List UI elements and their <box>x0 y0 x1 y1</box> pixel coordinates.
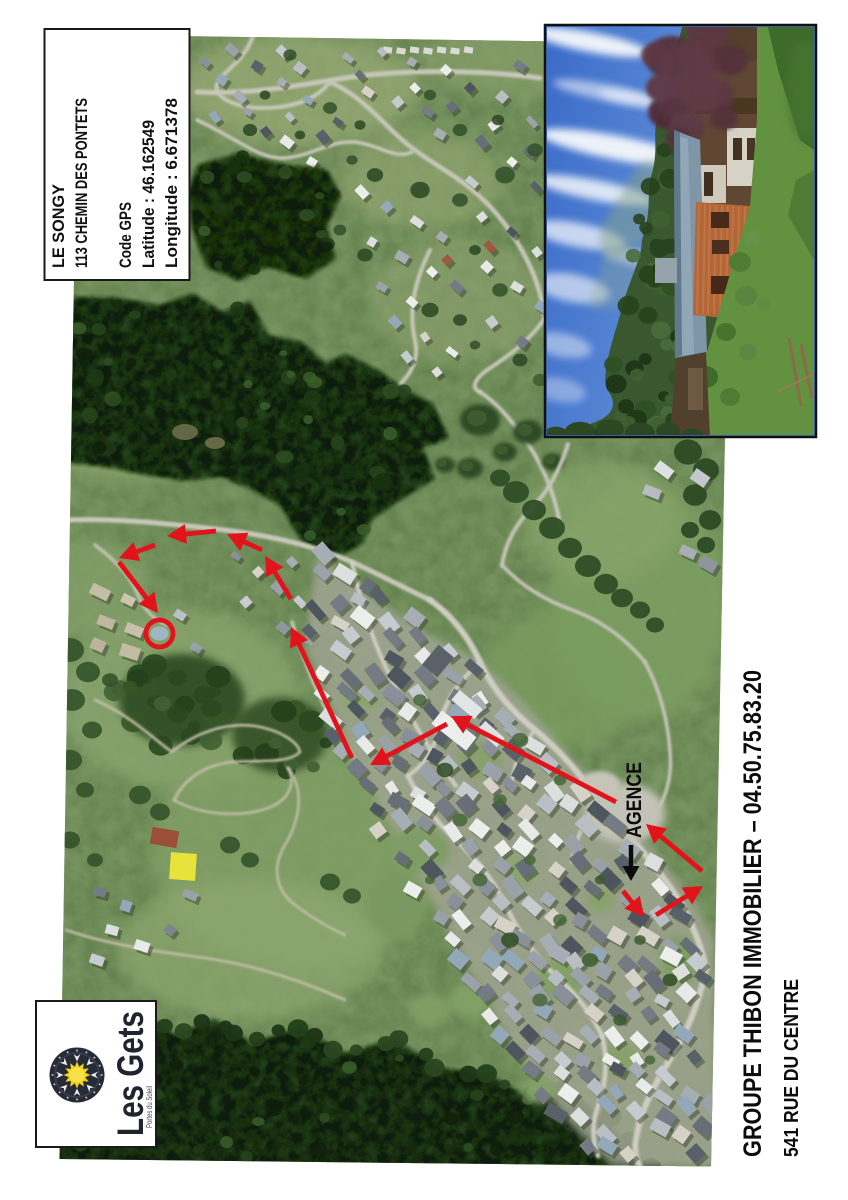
svg-text:LE SONGY: LE SONGY <box>50 184 68 268</box>
svg-text:541 RUE DU CENTRE: 541 RUE DU CENTRE <box>781 979 803 1157</box>
svg-text:113 CHEMIN DES PONTETS: 113 CHEMIN DES PONTETS <box>73 98 91 268</box>
svg-text:Latitude : 46.162549: Latitude : 46.162549 <box>140 120 158 268</box>
svg-text:GROUPE THIBON IMMOBILIER – 04.: GROUPE THIBON IMMOBILIER – 04.50.75.83.2… <box>739 670 767 1157</box>
svg-text:Longitude : 6.671378: Longitude : 6.671378 <box>163 98 181 268</box>
svg-text:Code GPS: Code GPS <box>117 202 135 268</box>
svg-text:Portes du Soleil: Portes du Soleil <box>145 1086 154 1128</box>
svg-text:AGENCE: AGENCE <box>623 762 646 838</box>
